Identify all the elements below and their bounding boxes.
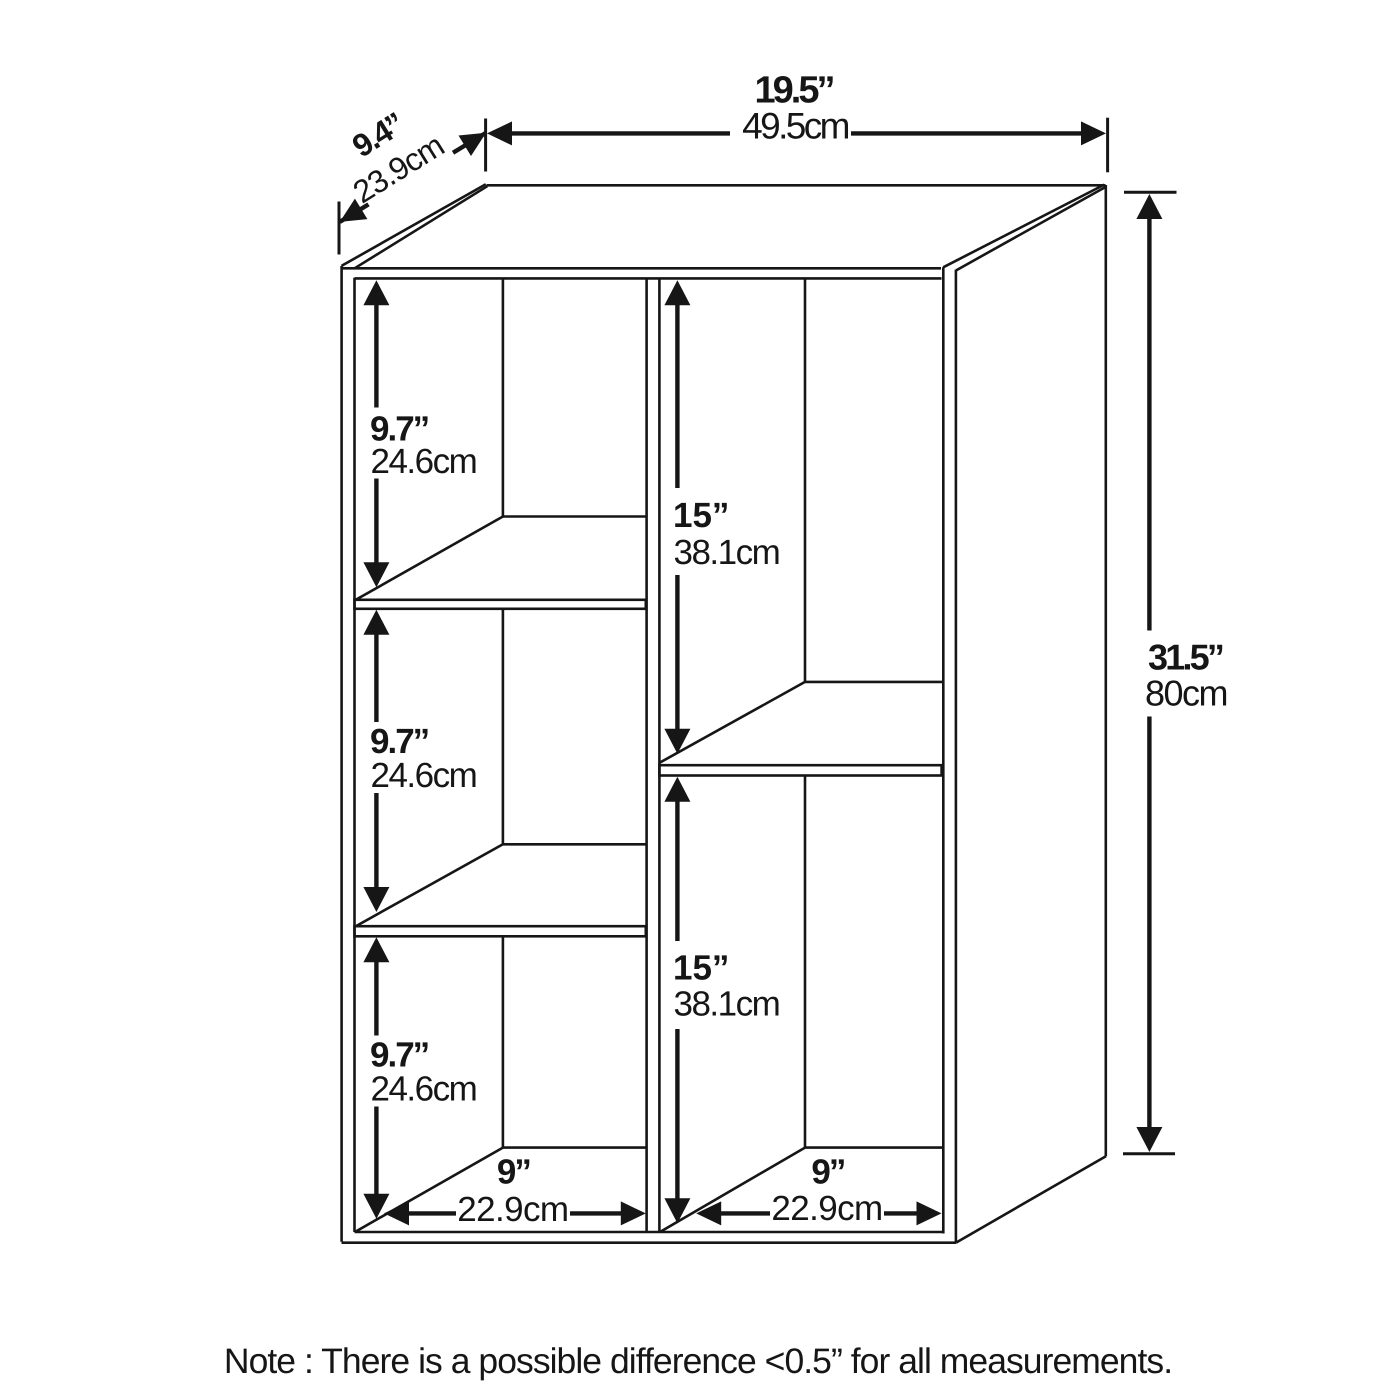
svg-text:38.1cm: 38.1cm <box>674 533 780 572</box>
svg-text:24.6cm: 24.6cm <box>371 756 477 795</box>
svg-text:9”: 9” <box>497 1153 530 1192</box>
svg-text:15”: 15” <box>673 496 729 535</box>
svg-text:Note : There is a possible dif: Note : There is a possible difference <0… <box>224 1341 1172 1381</box>
svg-text:9.7”: 9.7” <box>370 722 428 761</box>
svg-text:31.5”: 31.5” <box>1148 637 1223 678</box>
svg-text:24.6cm: 24.6cm <box>371 442 477 481</box>
svg-text:80cm: 80cm <box>1145 673 1227 714</box>
svg-text:22.9cm: 22.9cm <box>771 1189 882 1228</box>
svg-text:9.7”: 9.7” <box>370 1035 428 1074</box>
svg-text:24.6cm: 24.6cm <box>371 1070 477 1109</box>
svg-text:9”: 9” <box>811 1153 844 1192</box>
svg-text:49.5cm: 49.5cm <box>742 106 849 147</box>
svg-text:22.9cm: 22.9cm <box>457 1190 568 1229</box>
svg-text:15”: 15” <box>673 949 729 988</box>
svg-text:38.1cm: 38.1cm <box>674 985 780 1024</box>
